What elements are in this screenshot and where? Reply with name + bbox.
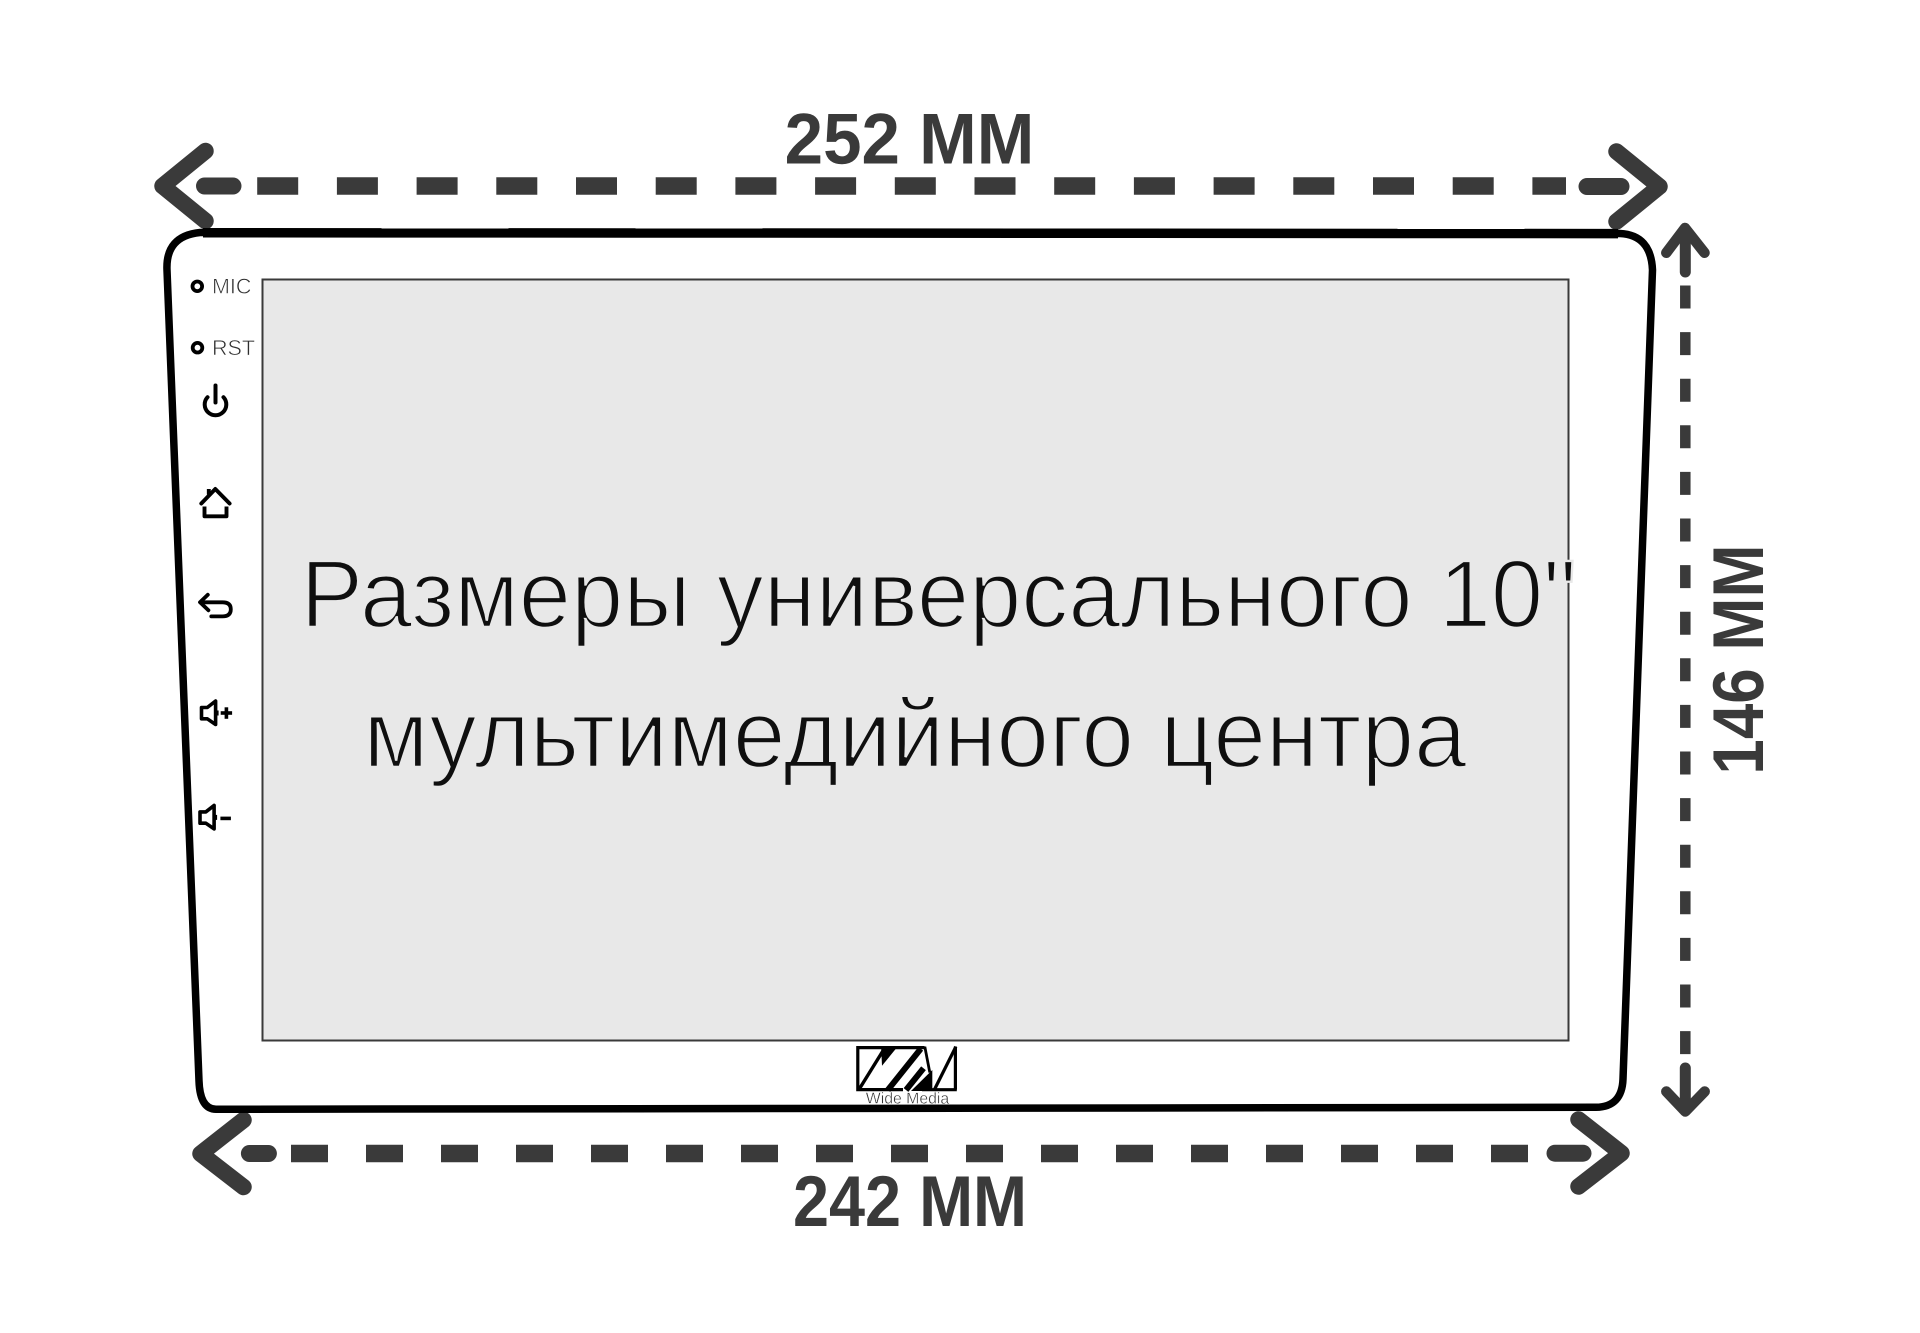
svg-text:Размеры универсального 10": Размеры универсального 10" bbox=[301, 541, 1577, 648]
svg-text:мультимедийного центра: мультимедийного центра bbox=[363, 681, 1467, 788]
svg-text:146 MM: 146 MM bbox=[1699, 544, 1779, 774]
svg-text:252 MM: 252 MM bbox=[785, 100, 1035, 180]
svg-text:MIC: MIC bbox=[212, 275, 251, 299]
svg-text:Wide Media: Wide Media bbox=[866, 1090, 950, 1107]
svg-text:RST: RST bbox=[212, 336, 255, 360]
svg-text:242 MM: 242 MM bbox=[793, 1162, 1027, 1242]
